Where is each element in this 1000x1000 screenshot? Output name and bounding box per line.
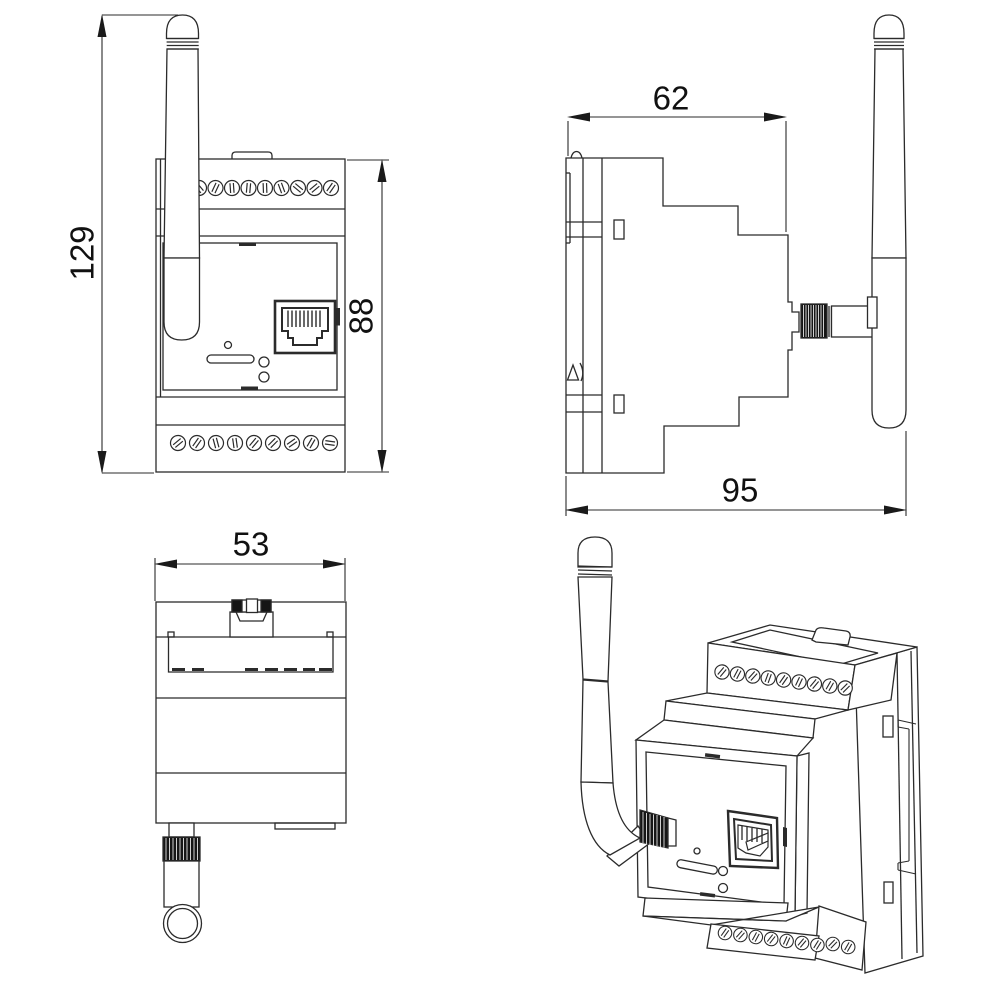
antenna-side xyxy=(868,15,907,428)
arrowhead-left xyxy=(567,113,590,122)
iso-antenna xyxy=(578,537,640,855)
arrowhead-left xyxy=(154,560,177,569)
iso-led-1 xyxy=(719,867,728,876)
iso-led-2 xyxy=(719,884,728,893)
arrowhead-up xyxy=(98,14,107,37)
side-profile xyxy=(566,152,799,474)
arrowhead-right xyxy=(323,560,346,569)
iso-panel-side-notch xyxy=(783,827,787,847)
rj45-port xyxy=(275,301,335,353)
top-view: 53 xyxy=(154,526,346,943)
iso-terminal-tier-bottom xyxy=(643,898,866,970)
antenna-hinge-notch xyxy=(868,297,878,328)
din-module-dimensional-drawing: 129 88 xyxy=(0,0,1000,1000)
iso-reset-hole xyxy=(694,848,700,854)
knurled-nut xyxy=(163,837,200,861)
reset-hole xyxy=(225,342,232,349)
side-view: 62 95 xyxy=(565,15,907,516)
panel-notch-top xyxy=(239,243,256,247)
iso-side-hole-bottom xyxy=(884,882,893,903)
arrowhead-right xyxy=(764,113,787,122)
antenna-cap xyxy=(874,15,904,39)
dimension-body-width: 53 xyxy=(154,526,346,601)
dim-label-overall-height: 129 xyxy=(64,225,101,280)
din-clip-top xyxy=(230,599,273,637)
dimension-body-depth: 62 xyxy=(567,80,787,232)
terminal-screws-top xyxy=(188,177,341,198)
arrowhead-left xyxy=(565,506,588,515)
din-clip-spring xyxy=(568,365,579,380)
iso-side-hole-top xyxy=(883,716,893,737)
side-hole-bottom xyxy=(614,395,624,413)
din-clip-tab xyxy=(232,152,272,159)
antenna-end-ring-inner xyxy=(168,909,198,939)
terminal-screws-bottom xyxy=(167,432,338,453)
din-clip-tab-side xyxy=(571,152,582,159)
dim-label-body-depth: 62 xyxy=(653,80,690,117)
antenna-cap xyxy=(167,15,199,39)
iso-rj45-port xyxy=(728,811,778,868)
connector-barrel xyxy=(164,861,199,907)
front-view: 129 88 xyxy=(64,14,389,474)
recessed-tray xyxy=(169,637,334,672)
dim-label-body-width: 53 xyxy=(233,526,270,563)
led-indicator-1 xyxy=(259,357,269,367)
label-slot xyxy=(207,355,254,363)
arrowhead-up xyxy=(378,159,387,182)
panel-notch-bottom xyxy=(241,387,258,391)
sma-connector-side xyxy=(801,304,873,338)
isometric-view xyxy=(578,537,923,973)
panel-side-notch xyxy=(336,308,340,326)
led-indicator-2 xyxy=(259,372,269,382)
side-hole-top xyxy=(614,220,624,239)
bottom-tab xyxy=(275,823,335,829)
dim-label-body-height: 88 xyxy=(343,298,380,335)
antenna-top-view xyxy=(163,823,202,943)
iso-clip-bump xyxy=(812,628,850,645)
sma-neck xyxy=(169,823,194,837)
arrowhead-down xyxy=(378,450,387,473)
rj45-pins xyxy=(288,311,320,328)
antenna-front xyxy=(164,15,200,340)
dimension-body-height: 88 xyxy=(343,159,389,473)
arrowhead-down xyxy=(98,451,107,474)
connector-barrel xyxy=(832,306,874,337)
technical-drawing-page: 129 88 xyxy=(0,0,1000,1000)
iso-antenna-cap xyxy=(578,537,612,567)
arrowhead-right xyxy=(884,506,907,515)
dim-label-overall-depth: 95 xyxy=(722,472,759,509)
